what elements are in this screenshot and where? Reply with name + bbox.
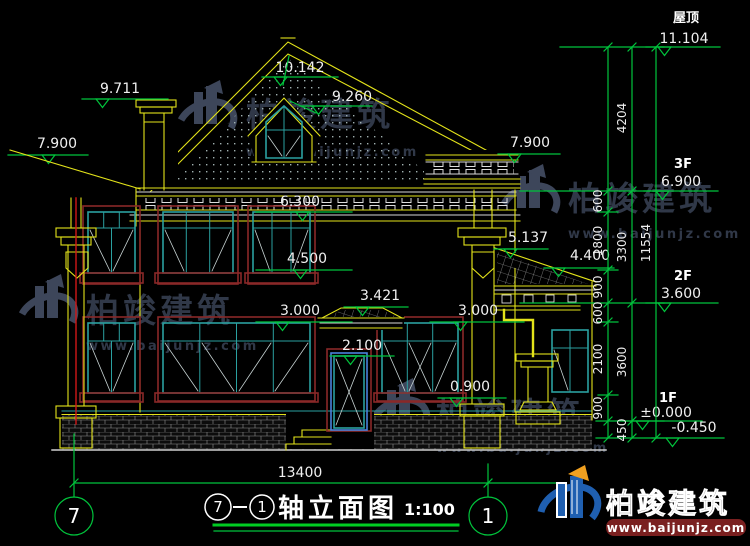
watermark-logo-icon [22, 274, 75, 322]
title-scale: 1:100 [404, 500, 455, 519]
svg-text:0.900: 0.900 [450, 379, 490, 395]
svg-text:2.100: 2.100 [342, 338, 382, 354]
level-mark-eave-left: 7.900 [8, 136, 140, 189]
svg-text:3.421: 3.421 [360, 288, 400, 304]
second-floor-window-right [245, 206, 318, 284]
svg-text:3.000: 3.000 [280, 303, 320, 319]
svg-text:1800: 1800 [591, 226, 605, 257]
title-axis-start: 7 [213, 498, 223, 516]
second-floor-window-center [155, 206, 241, 284]
axis-bubble-right: 1 [469, 497, 507, 535]
svg-text:1: 1 [482, 504, 495, 528]
drawing-title: 7 1 轴立面图 1:100 [205, 493, 458, 531]
level-mark-roof-top: 屋顶 11.104 [646, 11, 720, 56]
svg-text:6.300: 6.300 [280, 194, 320, 210]
chimney [132, 96, 178, 190]
svg-text:6.900: 6.900 [661, 174, 701, 190]
svg-text:7: 7 [68, 504, 81, 528]
dimension-total-width: 13400 [278, 465, 323, 481]
dimension-total-height: 11554 [639, 224, 653, 262]
dimension-values-inner: 600 1800 900 600 2100 900 [591, 190, 605, 420]
title-axis-end: 1 [257, 498, 267, 516]
brand-url: www.baijunjz.com [607, 521, 746, 535]
svg-text:9.260: 9.260 [332, 89, 372, 105]
svg-text:屋顶: 屋顶 [673, 11, 699, 26]
level-mark-grade: -0.450 [652, 420, 724, 447]
svg-text:3.000: 3.000 [458, 303, 498, 319]
dimension-values-floor: 4204 3300 3600 450 [615, 103, 629, 442]
svg-text:450: 450 [615, 419, 629, 442]
svg-text:1F: 1F [659, 391, 677, 406]
cad-elevation-screenshot: 柏竣建筑 www.baijunjz.com 柏竣建筑 www.baijunjz.… [0, 0, 750, 546]
svg-text:5.137: 5.137 [508, 230, 548, 246]
svg-text:900: 900 [591, 276, 605, 299]
svg-text:2F: 2F [674, 269, 692, 284]
level-mark-door-head: 2.100 [330, 338, 394, 365]
axis-bubble-left: 7 [55, 497, 93, 535]
svg-text:3300: 3300 [615, 232, 629, 263]
svg-text:11.104: 11.104 [660, 31, 709, 47]
main-cornice [130, 188, 520, 226]
svg-text:10.142: 10.142 [276, 60, 325, 76]
elevation-drawing-canvas: 柏竣建筑 www.baijunjz.com 柏竣建筑 www.baijunjz.… [0, 0, 750, 546]
level-mark-2f: 2F 3.600 [646, 269, 718, 312]
svg-text:4.500: 4.500 [287, 251, 327, 267]
svg-text:3600: 3600 [615, 347, 629, 378]
pilaster-shield-ornament [66, 252, 88, 278]
svg-text:-0.450: -0.450 [671, 420, 716, 436]
svg-text:600: 600 [591, 302, 605, 325]
brand-name: 柏竣建筑 [606, 487, 730, 520]
svg-text:±0.000: ±0.000 [640, 405, 692, 421]
svg-text:4204: 4204 [615, 103, 629, 134]
title-text: 轴立面图 [278, 493, 398, 524]
level-mark-win2-sill: 4.500 [256, 251, 352, 279]
svg-text:600: 600 [591, 190, 605, 213]
brand-logo-icon [541, 465, 598, 518]
door-canopy [318, 306, 404, 330]
svg-text:2100: 2100 [591, 344, 605, 375]
svg-text:9.711: 9.711 [100, 81, 140, 97]
svg-text:900: 900 [591, 397, 605, 420]
right-wing-cornice [424, 150, 520, 190]
footer-brand-logo: 柏竣建筑 www.baijunjz.com [541, 465, 746, 536]
porch-downspout [504, 310, 533, 356]
svg-text:7.900: 7.900 [37, 136, 77, 152]
column-shield-ornament [472, 252, 494, 278]
svg-text:3F: 3F [674, 157, 692, 172]
svg-text:3.600: 3.600 [661, 286, 701, 302]
svg-text:7.900: 7.900 [510, 135, 550, 151]
watermark-brand: 柏竣建筑 [86, 291, 234, 330]
